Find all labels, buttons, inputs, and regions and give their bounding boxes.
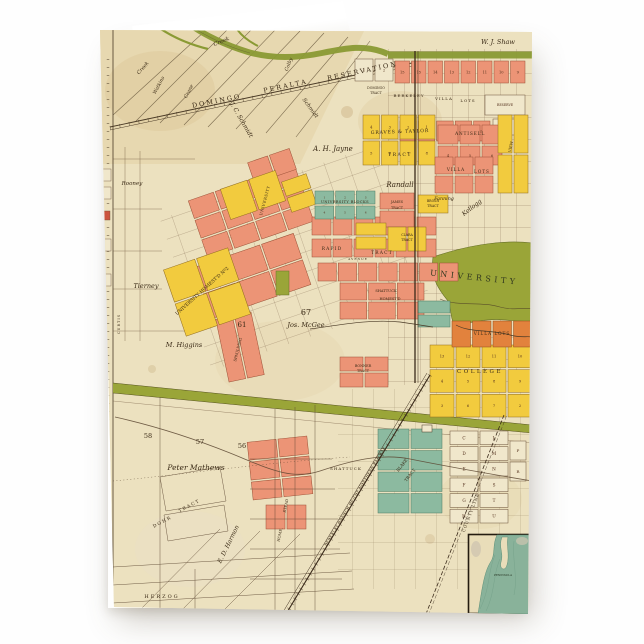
map-block bbox=[435, 176, 453, 193]
map-block bbox=[249, 459, 280, 480]
map-label: BONNER bbox=[355, 364, 372, 368]
map-block-label: T bbox=[493, 498, 496, 503]
map-block-label: 13 bbox=[440, 355, 445, 359]
map-block bbox=[475, 176, 493, 193]
map-label: 61 bbox=[238, 321, 247, 329]
map-block bbox=[340, 302, 367, 319]
map-label: W. J. Shaw bbox=[481, 38, 515, 46]
map-label: RAPID bbox=[322, 247, 343, 252]
station-box bbox=[422, 425, 432, 432]
map-block bbox=[356, 223, 386, 235]
map-block bbox=[452, 321, 471, 347]
map-block-label: 15 bbox=[400, 70, 405, 74]
map-label: ANTISELL bbox=[454, 132, 485, 137]
map-label: TRACT bbox=[427, 204, 439, 208]
map-block-label: C bbox=[462, 435, 465, 440]
map-block-label: 10 bbox=[518, 355, 523, 359]
map-label: BERKELEY bbox=[394, 93, 425, 98]
map-block-label: 10 bbox=[499, 70, 504, 74]
map-label: DOMINGO bbox=[367, 86, 385, 90]
map-block-label: 6 bbox=[365, 210, 367, 214]
map-block bbox=[251, 479, 282, 500]
map-block-label: 12 bbox=[466, 355, 471, 359]
map-label: CURTIS bbox=[117, 314, 121, 334]
map-block bbox=[287, 505, 306, 529]
map-block bbox=[278, 436, 309, 457]
map-label: TRACT bbox=[388, 152, 412, 158]
map-block-label: 2 bbox=[519, 404, 521, 408]
greeting-card-front[interactable]: 1515141312111091718192021RESERVE24124321… bbox=[100, 29, 532, 614]
map-cluster-reserve-block: RESERVE bbox=[485, 95, 525, 115]
map-cluster-olive-block bbox=[276, 271, 289, 295]
map-block-label: RESERVE bbox=[497, 103, 514, 107]
map-block bbox=[318, 263, 336, 281]
map-label: BROSH bbox=[427, 199, 440, 203]
map-block bbox=[340, 373, 363, 387]
map-block bbox=[333, 217, 352, 235]
map-block bbox=[338, 263, 356, 281]
map-block bbox=[379, 263, 397, 281]
map-label: Tierney bbox=[133, 282, 158, 290]
map-block bbox=[340, 283, 367, 300]
map-block bbox=[498, 155, 512, 193]
map-label: Jos. McGee bbox=[285, 321, 324, 329]
map-block-label: P bbox=[517, 448, 520, 453]
map-block bbox=[397, 283, 424, 300]
map-label: A. H. Jayne bbox=[312, 145, 353, 153]
map-label: COLLEGE bbox=[457, 369, 503, 375]
map-block-label: 5 bbox=[344, 210, 346, 214]
map-label: 67 bbox=[301, 308, 311, 317]
map-label: M. Higgins bbox=[165, 341, 203, 349]
map-label: TRACT bbox=[370, 91, 382, 95]
map-block bbox=[356, 237, 386, 249]
map-label: 57 bbox=[196, 438, 204, 446]
map-block-label: 2 bbox=[407, 125, 409, 129]
map-label: LOTS bbox=[474, 169, 490, 174]
map-block-label: 14 bbox=[433, 70, 438, 74]
map-label: 58 bbox=[144, 432, 152, 440]
map-label: VILLA bbox=[446, 167, 465, 172]
map-label: JAMES bbox=[390, 200, 404, 204]
map-block bbox=[378, 472, 409, 492]
map-block bbox=[369, 302, 396, 319]
map-block-label: 3 bbox=[365, 195, 367, 199]
map-label: Peter Mathews bbox=[166, 463, 224, 472]
map-block bbox=[312, 217, 331, 235]
map-label: VILLA bbox=[434, 96, 453, 101]
map-block bbox=[514, 115, 528, 153]
map-block bbox=[514, 321, 533, 347]
map-block bbox=[378, 429, 409, 449]
map-block bbox=[247, 439, 278, 460]
map-block bbox=[282, 476, 313, 497]
map-label: AVENUE bbox=[347, 257, 368, 261]
map-label: Rooney bbox=[121, 181, 144, 187]
map-block bbox=[455, 176, 473, 193]
card-back-fold bbox=[100, 0, 536, 34]
map-block-label: 11 bbox=[482, 70, 487, 74]
map-label: VILLA LOTS bbox=[473, 331, 510, 336]
map-label: 56 bbox=[238, 442, 246, 450]
map-block-label: 15 bbox=[416, 70, 421, 74]
map-block bbox=[359, 263, 377, 281]
map-block bbox=[365, 373, 388, 387]
map-label: TRACT bbox=[357, 369, 370, 373]
map-label: HOMEST'D bbox=[379, 297, 400, 301]
map-block-label: 4 bbox=[323, 210, 325, 214]
map-block-label: 12 bbox=[466, 70, 471, 74]
map-label: HERZOG bbox=[144, 594, 179, 600]
map-block bbox=[411, 472, 442, 492]
map-block-label: N bbox=[492, 467, 496, 472]
map-block-label: U bbox=[492, 514, 496, 519]
map-block bbox=[276, 271, 289, 295]
map-label: CLARA bbox=[401, 233, 413, 237]
map-block-label: 11 bbox=[492, 355, 497, 359]
map-label: SHATTUCK bbox=[375, 289, 397, 293]
map-label: LOTS bbox=[460, 98, 475, 103]
map-block bbox=[418, 301, 450, 313]
product-page: { "card": { "kind": "folded-greeting-car… bbox=[0, 0, 644, 644]
map-label: Randall bbox=[385, 181, 413, 189]
map-block bbox=[514, 155, 528, 193]
map-label: TRACT bbox=[391, 206, 404, 210]
map-label: TRACT bbox=[371, 251, 393, 256]
map-label: TRACT bbox=[401, 238, 413, 242]
map-block bbox=[411, 494, 442, 514]
map-block-label: 13 bbox=[449, 70, 454, 74]
berkeley-map: 1515141312111091718192021RESERVE24124321… bbox=[100, 29, 532, 614]
map-block-label: 2 bbox=[344, 195, 346, 199]
map-label: UNIVERSITY BLOCKS bbox=[321, 200, 369, 204]
map-label: PENINSULA bbox=[494, 573, 513, 577]
map-block-label: S bbox=[493, 482, 496, 487]
map-label: SHATTUCK bbox=[330, 466, 362, 471]
map-block-label: 1 bbox=[323, 195, 325, 199]
map-block-label: F bbox=[463, 482, 466, 487]
map-block bbox=[378, 494, 409, 514]
